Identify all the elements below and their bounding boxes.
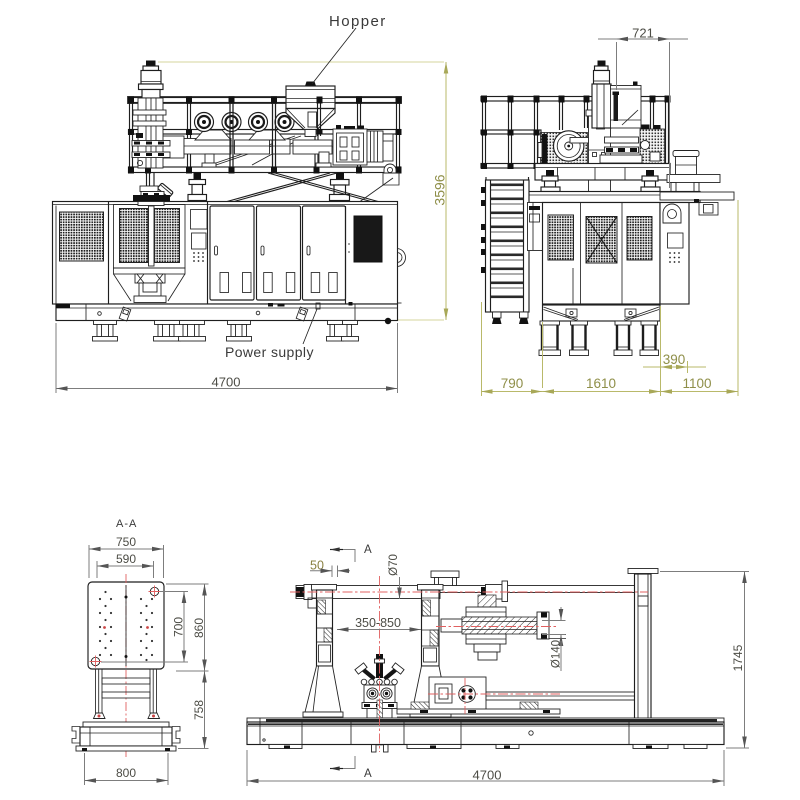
svg-text:1745: 1745: [731, 644, 745, 671]
svg-text:1610: 1610: [586, 376, 616, 391]
svg-text:Ø140: Ø140: [551, 640, 563, 668]
svg-text:750: 750: [116, 535, 136, 549]
svg-text:590: 590: [116, 552, 136, 566]
svg-text:390: 390: [663, 352, 686, 367]
svg-text:4700: 4700: [212, 375, 241, 390]
svg-text:758: 758: [192, 700, 206, 720]
svg-text:860: 860: [192, 618, 206, 638]
svg-text:A-A: A-A: [116, 518, 137, 530]
svg-text:790: 790: [501, 376, 524, 391]
svg-text:350-850: 350-850: [355, 616, 401, 630]
svg-text:A: A: [364, 768, 372, 780]
svg-text:700: 700: [172, 617, 186, 637]
svg-text:Ø70: Ø70: [388, 554, 400, 576]
svg-text:1100: 1100: [682, 376, 711, 391]
svg-text:Power supply: Power supply: [225, 344, 314, 360]
svg-text:Hopper: Hopper: [329, 13, 387, 30]
svg-text:A: A: [364, 544, 372, 556]
svg-text:4700: 4700: [473, 768, 502, 783]
svg-text:800: 800: [116, 766, 136, 780]
svg-text:721: 721: [632, 26, 654, 41]
svg-text:3596: 3596: [432, 174, 448, 205]
